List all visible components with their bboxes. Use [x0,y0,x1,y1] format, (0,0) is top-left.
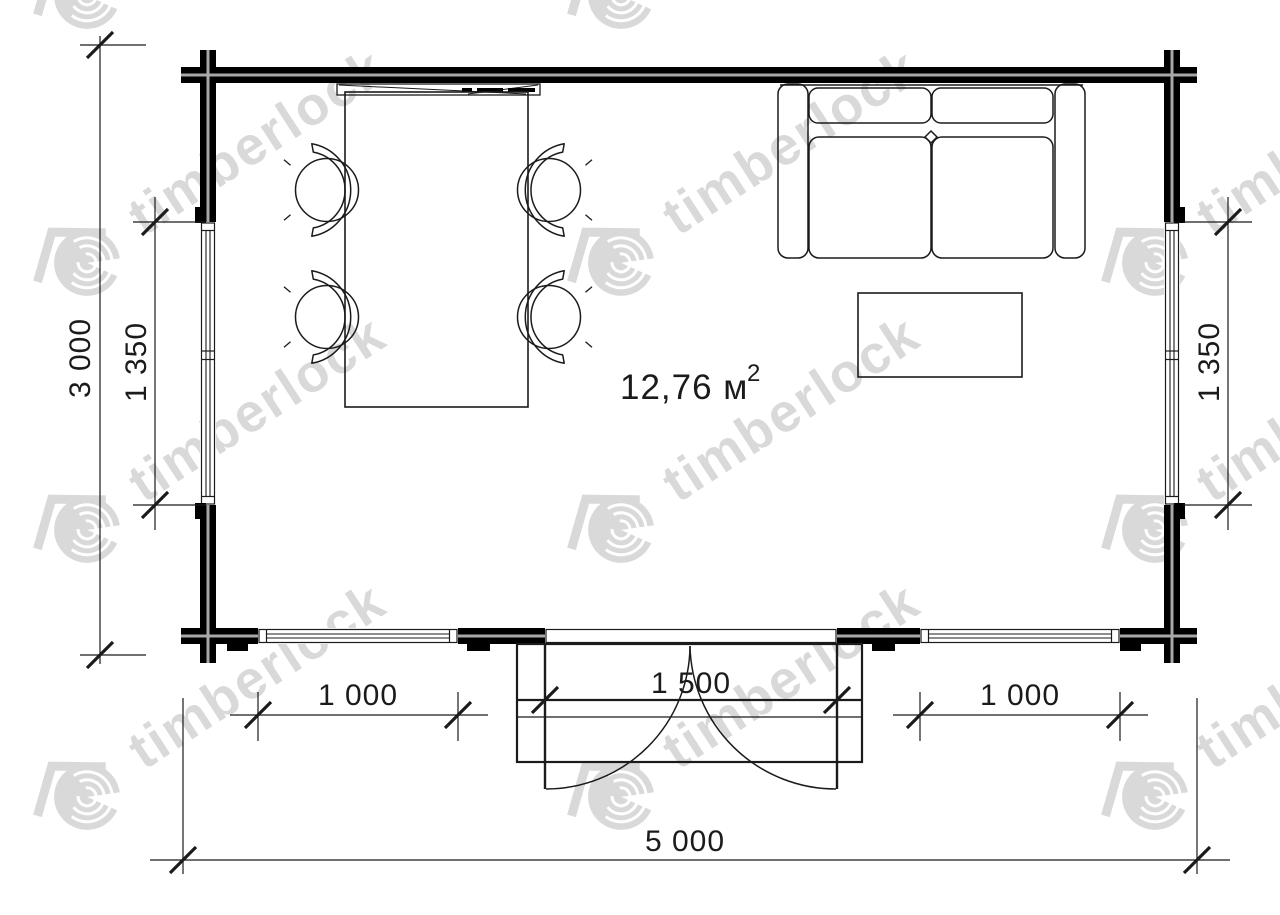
window-frame-stop [1174,207,1185,223]
dining-table-set [284,92,592,407]
dim-right-window: 1 350 [1183,197,1252,530]
wall-top-core-line [181,74,1197,77]
dim-front-door: 1 500 [532,667,850,713]
chair [284,144,359,237]
window-frame-stop [1120,644,1141,651]
chair [284,271,359,364]
dimensions: 3 000 1 350 1 350 [64,32,1252,874]
front-left-window [227,628,490,651]
dim-label-left-window: 1 350 [120,322,153,402]
sofa-seat-cushion [932,137,1053,258]
window-frame-stop [872,644,895,651]
floor-plan-page: timberlock timberlock timberlock timberl… [0,0,1280,915]
dim-front-left-window: 1 000 [230,679,488,741]
area-superscript: 2 [747,360,761,387]
dim-label-overall-depth: 3 000 [64,318,97,398]
double-door [545,628,837,789]
coffee-table [858,293,1022,377]
dim-overall-width: 5 000 [150,698,1230,874]
window-frame-stop [467,644,490,651]
wall-console [337,84,540,95]
dim-label-right-window: 1 350 [1193,322,1226,402]
dim-label-front-door: 1 500 [651,667,731,700]
area-value: 12,76 м [620,368,748,407]
left-window [195,207,216,519]
right-window [1164,207,1185,519]
dining-table [345,92,528,407]
sofa-cushion-joint [925,131,937,143]
sofa-armrest-left [778,84,808,258]
dim-front-right-window: 1 000 [893,679,1148,741]
dim-left-window: 1 350 [120,197,206,530]
window-frame-stop [227,644,248,651]
sofa [778,84,1085,258]
sofa-seat-cushion [809,137,931,258]
window-frame-stop [195,207,206,223]
sofa-back-cushion [809,88,931,123]
dim-label-front-right-window: 1 000 [980,679,1060,712]
log-walls [181,50,1197,663]
sofa-back-cushion [932,88,1053,123]
floor-plan-drawing: 12,76 м 2 3 000 1 350 [0,0,1280,915]
area-label: 12,76 м 2 [620,360,761,407]
dim-label-overall-width: 5 000 [645,825,725,858]
sofa-armrest-right [1055,84,1085,258]
dim-label-front-left-window: 1 000 [318,679,398,712]
